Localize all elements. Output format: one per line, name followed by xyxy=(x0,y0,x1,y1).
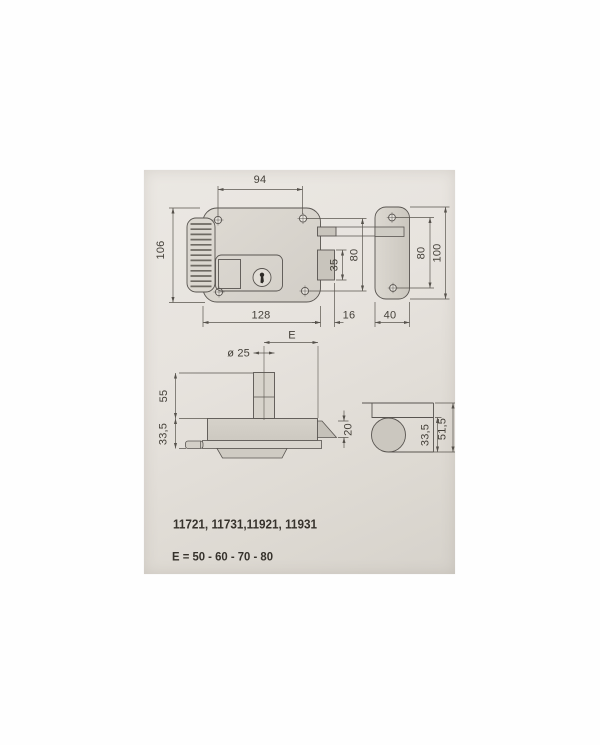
dim-35: 35 xyxy=(329,259,341,272)
dim-106: 106 xyxy=(155,241,167,260)
latch-alignment-lines xyxy=(336,227,375,236)
bottom-cover xyxy=(217,449,287,459)
dim-33-5-section: 33,5 xyxy=(158,423,170,445)
lock-technical-drawing: 94 106 128 16 35 80 xyxy=(144,170,455,574)
top-view xyxy=(187,208,375,302)
dim-20: 20 xyxy=(343,423,355,436)
scanned-catalog-page: 94 106 128 16 35 80 xyxy=(0,0,600,745)
base-plate xyxy=(203,441,322,449)
end-view-cylinder xyxy=(372,418,406,452)
dim-80-strike: 80 xyxy=(416,247,428,260)
dim-16: 16 xyxy=(343,310,356,322)
dim-55: 55 xyxy=(158,390,170,403)
dim-94: 94 xyxy=(254,174,267,186)
dim-40: 40 xyxy=(384,310,397,322)
dim-100: 100 xyxy=(432,244,444,263)
strike-view xyxy=(375,207,410,299)
dim-e: E xyxy=(288,330,296,342)
backset-options: E = 50 - 60 - 70 - 80 xyxy=(172,550,273,564)
section-view xyxy=(186,373,337,459)
dim-cyl-dia: ø 25 xyxy=(227,348,250,360)
bolt-wedge xyxy=(318,421,337,438)
section-body xyxy=(208,419,318,441)
catalog-photo: 94 106 128 16 35 80 xyxy=(144,170,455,574)
strike-slot xyxy=(375,227,404,237)
dim-51-5: 51,5 xyxy=(437,418,449,440)
latch-bolt xyxy=(318,227,337,236)
dim-128: 128 xyxy=(252,310,271,322)
dim-33-5-end: 33,5 xyxy=(420,424,432,446)
dim-80-main: 80 xyxy=(349,249,361,262)
product-codes: 11721, 11731,11921, 11931 xyxy=(173,517,317,532)
